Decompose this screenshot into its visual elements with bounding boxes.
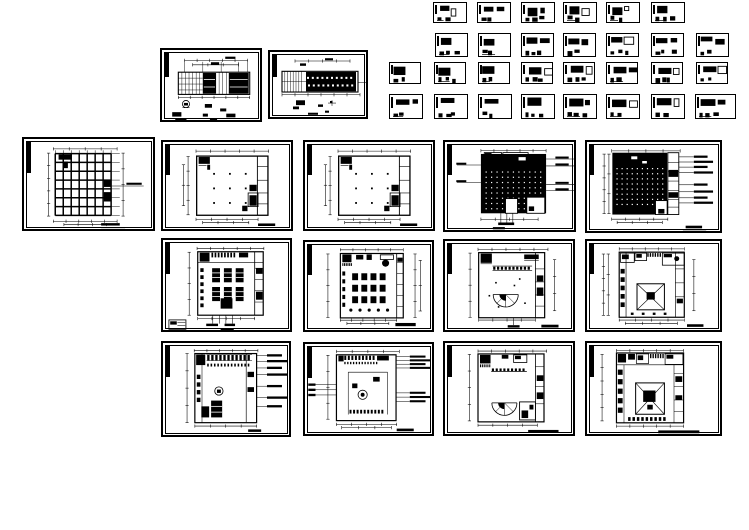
sheet-q4 bbox=[585, 239, 722, 332]
detail-drawing bbox=[564, 63, 595, 84]
sheet-r1 bbox=[161, 341, 291, 437]
detail-drawing bbox=[564, 3, 597, 23]
sheet-d16 bbox=[478, 62, 510, 84]
detail-drawing bbox=[522, 34, 554, 57]
sheet-d11 bbox=[606, 33, 639, 57]
detail-drawing bbox=[390, 63, 421, 84]
empty-plan-drawing bbox=[305, 142, 435, 231]
sheet-q3 bbox=[443, 239, 575, 332]
detail-drawing bbox=[479, 63, 510, 84]
sheet-d27 bbox=[606, 94, 640, 119]
sheet-d20 bbox=[651, 62, 683, 84]
empty-plan-drawing bbox=[163, 142, 293, 231]
furnished-plan-drawing bbox=[163, 240, 292, 332]
sheet-d29 bbox=[695, 94, 736, 119]
detail-drawing bbox=[652, 63, 683, 84]
dark-plan-drawing bbox=[445, 142, 576, 232]
banquet-plan-drawing bbox=[305, 242, 434, 332]
detail-drawing bbox=[652, 95, 685, 119]
sheet-p5 bbox=[585, 140, 722, 233]
sheet-p4 bbox=[443, 140, 576, 232]
sheet-d21 bbox=[696, 62, 728, 84]
sheet-d17 bbox=[521, 62, 553, 84]
detail-drawing bbox=[478, 3, 511, 23]
sheet-d23 bbox=[434, 94, 468, 119]
detail-drawing bbox=[607, 63, 638, 84]
detail-drawing bbox=[607, 95, 640, 119]
sheet-d05 bbox=[606, 2, 640, 23]
grid-plan-drawing bbox=[24, 139, 155, 231]
sheet-d01 bbox=[433, 2, 467, 23]
sheet-q2 bbox=[303, 240, 434, 332]
arc-plan2-drawing bbox=[445, 343, 575, 436]
court-plan-drawing bbox=[587, 343, 722, 436]
detail-drawing bbox=[479, 34, 511, 57]
detail-drawing bbox=[696, 95, 736, 119]
detail-drawing bbox=[652, 34, 684, 57]
page bbox=[0, 0, 749, 530]
detail-drawing bbox=[522, 63, 553, 84]
sheet-d19 bbox=[606, 62, 638, 84]
sheet-d08 bbox=[478, 33, 511, 57]
sheet-d13 bbox=[696, 33, 729, 57]
sheet-d06 bbox=[651, 2, 685, 23]
sheet-d10 bbox=[563, 33, 596, 57]
detail-drawing bbox=[697, 34, 729, 57]
sheet-d25 bbox=[521, 94, 555, 119]
sheet-d03 bbox=[521, 2, 555, 23]
elevation-a-drawing bbox=[162, 50, 262, 122]
sheet-r4 bbox=[585, 341, 722, 436]
detail-drawing bbox=[479, 95, 512, 119]
sheet-d14 bbox=[389, 62, 421, 84]
drawing-canvas bbox=[0, 0, 749, 530]
sheet-p2 bbox=[161, 140, 293, 231]
sheet-d15 bbox=[434, 62, 466, 84]
arc-plan-drawing bbox=[445, 241, 575, 332]
detail-drawing bbox=[564, 34, 596, 57]
detail-drawing bbox=[652, 3, 685, 23]
annot-plan2-drawing bbox=[305, 344, 434, 436]
sheet-d18 bbox=[563, 62, 595, 84]
detail-drawing bbox=[522, 3, 555, 23]
detail-drawing bbox=[522, 95, 555, 119]
sheet-d04 bbox=[563, 2, 597, 23]
detail-drawing bbox=[436, 34, 468, 57]
detail-drawing bbox=[607, 34, 639, 57]
sheet-r2 bbox=[303, 342, 434, 436]
sheet-d22 bbox=[389, 94, 423, 119]
dark-plan2-drawing bbox=[587, 142, 722, 233]
sheet-p3 bbox=[303, 140, 435, 231]
sheet-d02 bbox=[477, 2, 511, 23]
detail-drawing bbox=[390, 95, 423, 119]
detail-drawing bbox=[564, 95, 597, 119]
sheet-d28 bbox=[651, 94, 685, 119]
annot-plan-drawing bbox=[163, 343, 291, 437]
square-plan-drawing bbox=[587, 241, 722, 332]
detail-drawing bbox=[697, 63, 728, 84]
sheet-eb bbox=[268, 50, 368, 119]
detail-drawing bbox=[435, 63, 466, 84]
elevation-b-drawing bbox=[270, 52, 368, 119]
detail-drawing bbox=[435, 95, 468, 119]
sheet-d09 bbox=[521, 33, 554, 57]
sheet-d26 bbox=[563, 94, 597, 119]
sheet-q1 bbox=[161, 238, 292, 332]
sheet-d24 bbox=[478, 94, 512, 119]
detail-drawing bbox=[434, 3, 467, 23]
sheet-d12 bbox=[651, 33, 684, 57]
detail-drawing bbox=[607, 3, 640, 23]
sheet-p1 bbox=[22, 137, 155, 231]
sheet-d07 bbox=[435, 33, 468, 57]
sheet-ea bbox=[160, 48, 262, 122]
sheet-r3 bbox=[443, 341, 575, 436]
